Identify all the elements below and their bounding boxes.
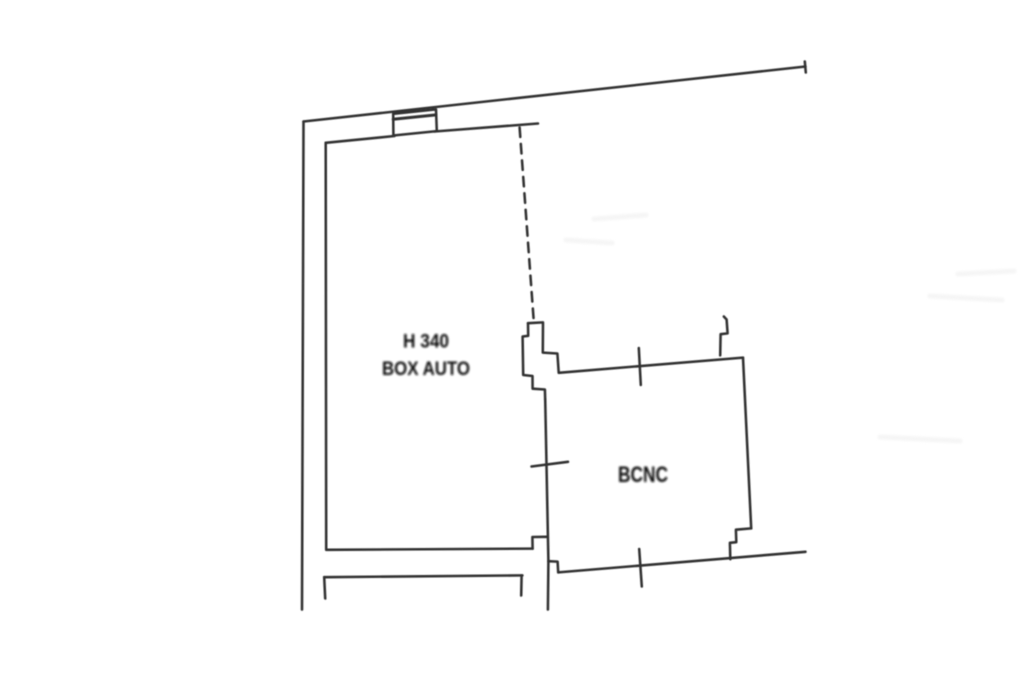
- svg-text:H 340: H 340: [403, 332, 449, 353]
- svg-text:BOX AUTO: BOX AUTO: [382, 359, 470, 380]
- svg-text:BCNC: BCNC: [618, 462, 668, 487]
